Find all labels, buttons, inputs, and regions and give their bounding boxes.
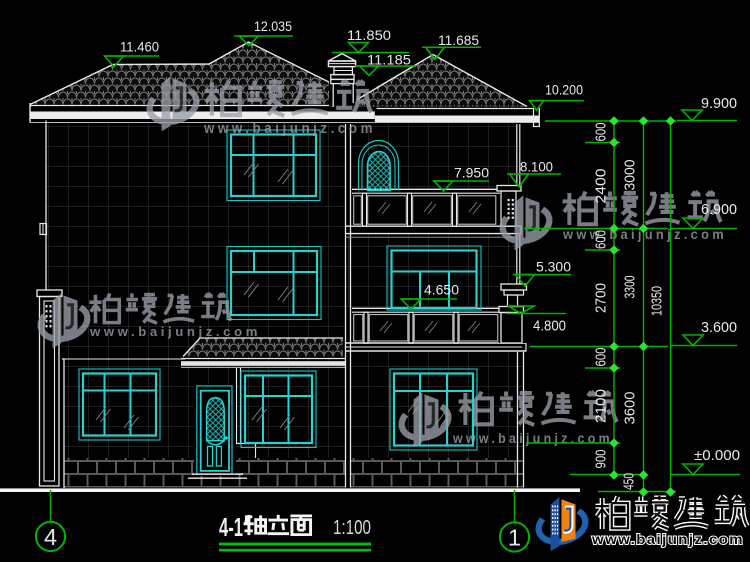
svg-text:8.100: 8.100 <box>520 159 553 175</box>
svg-text:11.850: 11.850 <box>347 27 391 43</box>
svg-text:1:100: 1:100 <box>333 517 371 539</box>
svg-text:7.950: 7.950 <box>454 165 489 181</box>
svg-text:www.baijunjz.com: www.baijunjz.com <box>203 120 376 137</box>
svg-text:3000: 3000 <box>623 160 639 191</box>
svg-text:1: 1 <box>508 525 521 551</box>
svg-text:4: 4 <box>44 524 57 550</box>
svg-text:±0.000: ±0.000 <box>694 447 740 464</box>
svg-text:9.900: 9.900 <box>701 95 737 112</box>
svg-text:12.035: 12.035 <box>254 18 292 34</box>
svg-text:www.baijunjz.com: www.baijunjz.com <box>452 431 613 446</box>
svg-text:www.baijunjz.com: www.baijunjz.com <box>591 532 744 547</box>
svg-text:www.baijunjz.com: www.baijunjz.com <box>89 325 261 339</box>
svg-text:4.650: 4.650 <box>424 282 459 298</box>
svg-text:6.900: 6.900 <box>701 201 737 218</box>
svg-text:10.200: 10.200 <box>545 82 583 98</box>
svg-text:3600: 3600 <box>623 392 639 425</box>
svg-text:600: 600 <box>594 230 610 249</box>
svg-text:5.300: 5.300 <box>536 259 571 275</box>
svg-text:3.600: 3.600 <box>701 319 737 336</box>
svg-text:11.460: 11.460 <box>120 39 159 55</box>
svg-text:10350: 10350 <box>650 286 666 316</box>
svg-text:3300: 3300 <box>623 276 639 299</box>
svg-text:450: 450 <box>622 473 638 490</box>
svg-text:4.800: 4.800 <box>533 318 566 335</box>
svg-text:2100: 2100 <box>594 389 610 423</box>
svg-text:11.185: 11.185 <box>367 52 411 68</box>
svg-text:600: 600 <box>594 348 610 367</box>
svg-text:2400: 2400 <box>594 169 610 204</box>
svg-text:4-1: 4-1 <box>219 512 243 542</box>
svg-text:2700: 2700 <box>594 283 610 313</box>
svg-text:900: 900 <box>594 450 610 469</box>
svg-text:600: 600 <box>594 123 610 142</box>
svg-text:11.685: 11.685 <box>438 32 479 48</box>
